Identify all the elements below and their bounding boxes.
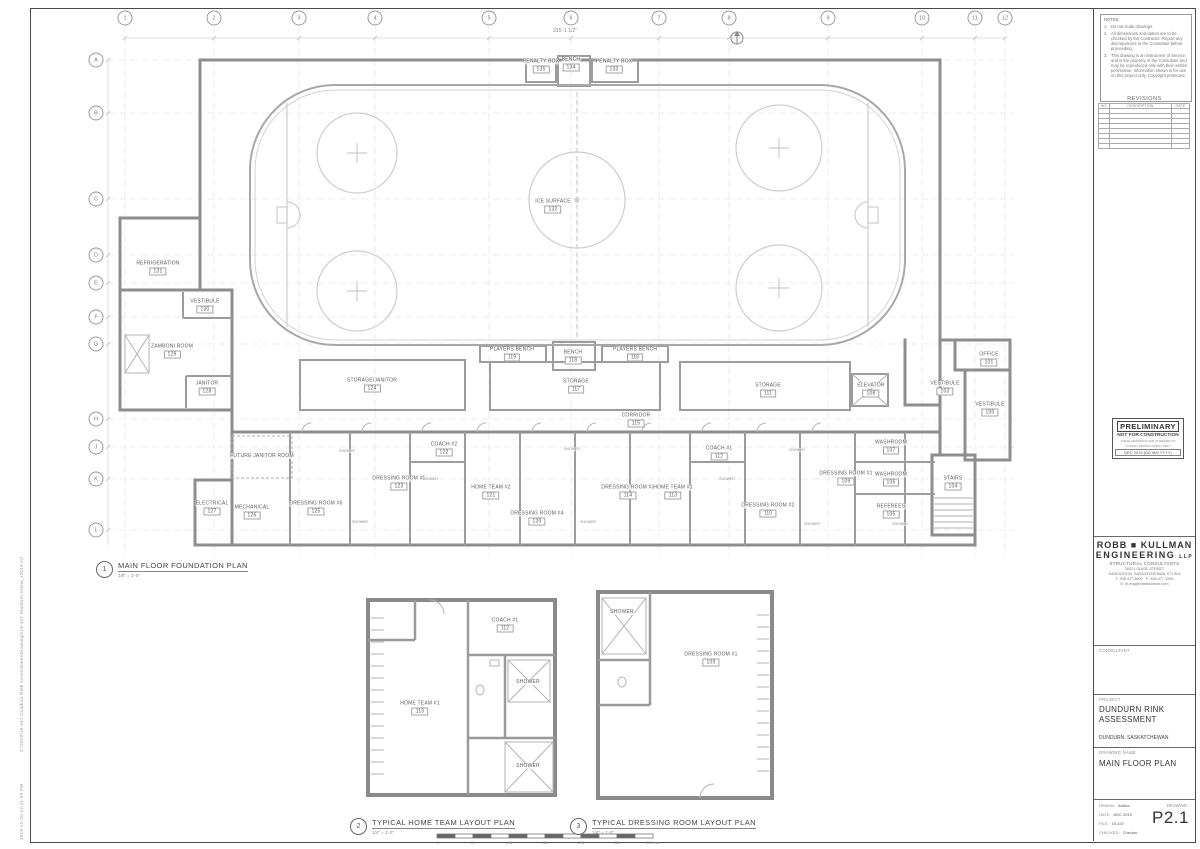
fixture-label-shower: SHOWER xyxy=(719,477,735,481)
room-label-125: DRESSING ROOM #6125 xyxy=(289,501,342,516)
plan-number-bubble: 3 xyxy=(570,818,587,835)
project-location: DUNDURN, SASKATCHEWAN xyxy=(1099,735,1168,741)
room-label-127: ELECTRICAL127 xyxy=(196,501,229,516)
room-label-130: VESTIBULE130 xyxy=(190,299,219,314)
drawing-name-label: DRAWING NAME xyxy=(1099,750,1136,755)
fixture-label-shower: SHOWER xyxy=(804,522,820,526)
stamp-title: PRELIMINARY xyxy=(1117,421,1179,432)
grid-column-11: 11 xyxy=(968,11,983,26)
grid-row-D: D xyxy=(89,248,104,263)
room-label-129: ZAMBONI ROOM129 xyxy=(151,344,193,359)
scale-bar-label: 200 xyxy=(578,840,585,845)
room-label-121: HOME TEAM #2121 xyxy=(471,485,511,500)
note-item-1: 1.Do not scale drawings. xyxy=(1104,24,1188,29)
firm-tagline: STRUCTURAL CONSULTANTS xyxy=(1094,561,1195,566)
room-label-106: WASHROOM106 xyxy=(875,472,907,487)
room-label-109: DRESSING ROOM #1109 xyxy=(819,471,872,486)
room-label-113: HOME TEAM #1113 xyxy=(653,485,693,500)
room-label-shower: SHOWER xyxy=(610,609,634,615)
grid-row-B: B xyxy=(89,106,104,121)
grid-row-F: F xyxy=(89,310,104,325)
room-label-110: DRESSING ROOM #2110 xyxy=(741,503,794,518)
grid-column-8: 8 xyxy=(722,11,737,26)
room-label-future-janitor-room: FUTURE JANITOR ROOM xyxy=(230,453,294,459)
room-label-111: STORAGE111 xyxy=(755,383,781,398)
project-label: PROJECT xyxy=(1099,697,1121,702)
project-name-1: DUNDURN RINK xyxy=(1099,705,1164,714)
firm-name-line2: ENGINEERING LLP xyxy=(1094,550,1195,560)
grid-row-E: E xyxy=(89,276,104,291)
room-label-119: PLAYERS BENCH119 xyxy=(490,347,534,362)
note-item-2: 2.All dimensions and datum are to be che… xyxy=(1104,31,1188,51)
notes-title: NOTES: xyxy=(1104,17,1188,22)
scale-bar-label: 300 mm xyxy=(646,840,660,845)
grid-row-K: K xyxy=(89,472,104,487)
scale-bar-label: 50 xyxy=(471,840,475,845)
room-label-128: JANITOR128 xyxy=(196,381,219,396)
grid-row-J: J xyxy=(89,440,104,455)
fixture-label-shower: SHOWER xyxy=(564,447,580,451)
preliminary-stamp: PRELIMINARY NOT FOR CONSTRUCTION THESE D… xyxy=(1112,418,1184,459)
room-label-114: DRESSING ROOM #3114 xyxy=(601,485,654,500)
firm-block: ROBB ■ KULLMAN ENGINEERING LLP STRUCTURA… xyxy=(1094,540,1195,586)
project-name-2: ASSESSMENT xyxy=(1099,715,1157,724)
scale-bar-label: 100 xyxy=(506,840,513,845)
drawing-sheet: 2019-12-20 12:41:03 PM Z:\2019\19-447 Du… xyxy=(0,0,1200,849)
stamp-note-2: CONVEY DESIGN INTENT ONLY xyxy=(1115,444,1181,448)
room-label-108: ELEVATOR108 xyxy=(857,383,884,398)
north-arrow-icon xyxy=(731,31,743,44)
grid-column-9: 9 xyxy=(821,11,836,26)
firm-name-line1: ROBB ■ KULLMAN xyxy=(1094,540,1195,550)
room-label-115: CORRIDOR115 xyxy=(622,413,651,428)
room-label-122: COACH #2122 xyxy=(431,442,458,457)
scale-bar-label: 0 xyxy=(436,840,438,845)
grid-row-G: G xyxy=(89,337,104,352)
room-label-112: COACH #1112 xyxy=(492,618,519,633)
fixture-label-shower: SHOWER xyxy=(892,522,908,526)
firm-email: E: rk.eng@robbkullman.com xyxy=(1094,582,1195,586)
room-label-131: REFRIGERATION131 xyxy=(136,261,179,276)
note-item-3: 3.This drawing is an instrument of Servi… xyxy=(1104,53,1188,78)
room-label-105: REFEREES105 xyxy=(877,504,906,519)
grid-column-2: 2 xyxy=(207,11,222,26)
room-label-123: DRESSING ROOM #5123 xyxy=(372,476,425,491)
room-label-109: DRESSING ROOM #1109 xyxy=(684,652,737,667)
sheet-number: P2.1 xyxy=(1152,808,1189,828)
room-label-133: PENALTY BOX133 xyxy=(596,59,632,74)
grid-row-H: H xyxy=(89,412,104,427)
fixture-label-shower: SHOWER xyxy=(580,520,596,524)
grid-column-6: 6 xyxy=(564,11,579,26)
room-label-112: COACH #1112 xyxy=(706,446,733,461)
grid-column-5: 5 xyxy=(482,11,497,26)
title-block: NOTES: 1.Do not scale drawings.2.All dim… xyxy=(1093,8,1195,841)
room-label-117: STORAGE117 xyxy=(563,379,589,394)
grid-row-A: A xyxy=(89,53,104,68)
date-row: DATE:DEC 2019 xyxy=(1099,812,1132,817)
room-label-104: STAIRS104 xyxy=(944,476,963,491)
plan-number-bubble: 2 xyxy=(350,818,367,835)
room-label-116: PLAYERS BENCH116 xyxy=(613,347,657,362)
overall-dimension: 215'-1 1/2" xyxy=(551,28,579,34)
grid-column-7: 7 xyxy=(652,11,667,26)
stamp-date: DEC 2019 (DD MM YYYY) xyxy=(1115,449,1181,456)
fixture-label-shower: SHOWER xyxy=(339,449,355,453)
room-label-126: MECHANICAL126 xyxy=(235,505,270,520)
revisions-table: NO. DESCRIPTION DATE xyxy=(1098,103,1190,149)
room-label-100: VESTIBULE100 xyxy=(975,402,1004,417)
revisions-title: REVISIONS xyxy=(1094,96,1195,102)
fixture-label-shower: SHOWER xyxy=(352,520,368,524)
plan-title-1: 1MAIN FLOOR FOUNDATION PLAN1/8" = 1'-0" xyxy=(96,561,248,578)
room-label-shower: SHOWER xyxy=(516,679,540,685)
room-label-107: WASHROOM107 xyxy=(875,440,907,455)
checked-row: CHECKED:Checker xyxy=(1099,830,1138,835)
room-label-101: OFFICE101 xyxy=(979,352,999,367)
grid-column-3: 3 xyxy=(292,11,307,26)
firm-address-1: 3022 LOUISE STREET xyxy=(1094,567,1195,571)
grid-column-1: 1 xyxy=(118,11,133,26)
revision-row xyxy=(1099,144,1190,149)
drawn-row: DRAWN:Author xyxy=(1099,803,1130,808)
stamp-note-1: THESE DRAWINGS ARE INTENDED TO xyxy=(1115,439,1181,443)
firm-address-2: SASKATOON, SASKATCHEWAN S7J 3L8 xyxy=(1094,572,1195,576)
file-row: FILE:19-447 xyxy=(1099,821,1124,826)
fixture-label-shower: SHOWER xyxy=(789,448,805,452)
room-label-118: BENCH118 xyxy=(564,350,583,365)
drawing-name: MAIN FLOOR PLAN xyxy=(1099,759,1176,768)
plan-title-2: 2TYPICAL HOME TEAM LAYOUT PLAN1/4" = 1'-… xyxy=(350,818,515,835)
scale-bar-label: 150 xyxy=(542,840,549,845)
room-label-135: PENALTY BOX135 xyxy=(523,59,559,74)
grid-column-10: 10 xyxy=(915,11,930,26)
grid-row-C: C xyxy=(89,192,104,207)
fixture-label-shower: SHOWER xyxy=(422,477,438,481)
notes-box: NOTES: 1.Do not scale drawings.2.All dim… xyxy=(1100,14,1192,102)
grid-column-12: 12 xyxy=(998,11,1013,26)
room-label-124: STORAGE/JANITOR124 xyxy=(347,378,397,393)
stamp-subtitle: NOT FOR CONSTRUCTION xyxy=(1115,433,1181,438)
room-label-132: ICE SURFACE132 xyxy=(535,199,571,214)
room-label-120: DRESSING ROOM #4120 xyxy=(510,511,563,526)
consultant-label: CONSULTANT xyxy=(1099,648,1130,653)
floor-plan-linework xyxy=(0,0,1200,849)
plan-title-3: 3TYPICAL DRESSING ROOM LAYOUT PLAN1/4" =… xyxy=(570,818,756,835)
room-label-shower: SHOWER xyxy=(516,763,540,769)
room-label-134: BENCH134 xyxy=(562,57,581,72)
grid-row-L: L xyxy=(89,523,104,538)
room-label-113: HOME TEAM #1113 xyxy=(400,701,440,716)
scale-bar-label: 250 xyxy=(614,840,621,845)
grid-column-4: 4 xyxy=(368,11,383,26)
firm-phone-fax: T: 306.477.3600 F: 306.477.1995 xyxy=(1094,577,1195,581)
room-label-103: VESTIBULE103 xyxy=(930,381,959,396)
plan-number-bubble: 1 xyxy=(96,561,113,578)
